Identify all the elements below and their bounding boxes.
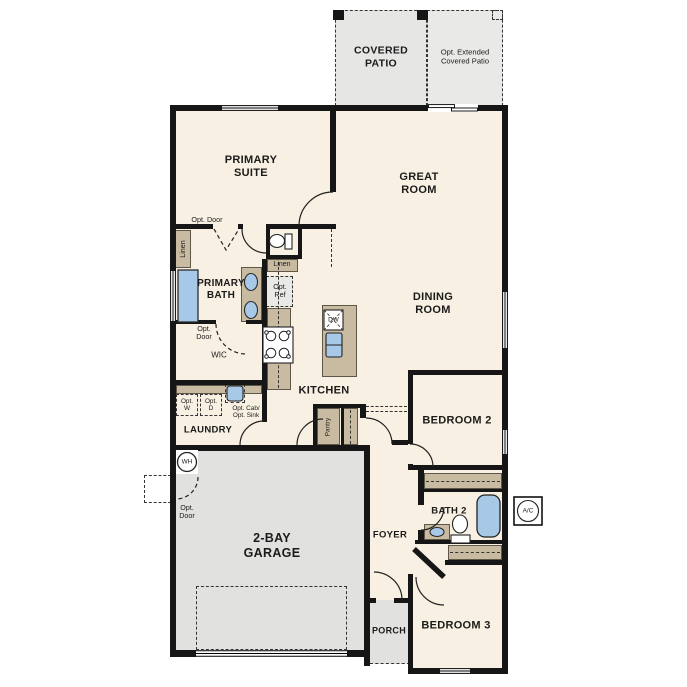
label-porch: PORCH — [372, 626, 406, 637]
patio-post — [333, 10, 344, 20]
label-dining-room: DINING ROOM — [413, 291, 453, 317]
garage-door-outline — [196, 586, 347, 650]
label-ac: A/C — [523, 507, 534, 514]
label-linen-bath: Linen — [273, 261, 290, 269]
label-garage: 2-BAY GARAGE — [244, 531, 301, 561]
porch-edge-line — [370, 663, 410, 664]
label-laundry: LAUNDRY — [184, 424, 232, 435]
bath2-vanity — [424, 524, 450, 540]
label-wic: WIC — [211, 352, 227, 361]
label-bath2: BATH 2 — [431, 505, 466, 516]
label-bedroom2: BEDROOM 2 — [422, 414, 491, 427]
label-linen-left: Linen — [179, 240, 187, 258]
label-opt-extended-patio: Opt. Extended Covered Patio — [441, 49, 490, 66]
label-kitchen: KITCHEN — [299, 384, 350, 397]
hall-ceiling-break — [366, 411, 407, 412]
laundry-counter — [176, 385, 262, 394]
bedroom2-closet-rod — [426, 481, 500, 482]
label-opt-door-garage: Opt. Door — [179, 504, 195, 520]
label-bedroom3: BEDROOM 3 — [421, 619, 490, 632]
label-opt-d: Opt. D — [205, 398, 217, 412]
opt-cab-sink-box — [225, 384, 245, 403]
patio-post-optional — [492, 10, 503, 20]
label-primary-bath: PRIMARY BATH — [197, 278, 245, 302]
label-dw: DW — [328, 316, 339, 323]
label-opt-cab-sink: Opt. Cab/ Opt. Sink — [232, 405, 259, 419]
floor-plan: COVERED PATIO Opt. Extended Covered Pati… — [0, 0, 687, 687]
patio-post — [417, 10, 428, 20]
bedroom3-closet-rod — [450, 552, 500, 553]
hall-ceiling-break — [366, 406, 407, 407]
counter-centerline — [278, 262, 279, 388]
label-opt-door-wic: Opt. Door — [196, 325, 212, 341]
label-foyer: FOYER — [373, 529, 407, 540]
label-wh: WH — [182, 458, 193, 465]
label-pantry: Pantry — [324, 418, 331, 436]
label-opt-door-suite: Opt. Door — [191, 216, 222, 224]
label-primary-suite: PRIMARY SUITE — [225, 154, 277, 180]
label-great-room: GREAT ROOM — [399, 171, 438, 197]
label-opt-w: Opt. W — [181, 398, 193, 412]
foyer-area — [366, 450, 408, 602]
label-covered-patio: COVERED PATIO — [354, 44, 408, 69]
kitchen-counter — [267, 308, 291, 390]
coat-closet-rod — [350, 410, 351, 444]
label-opt-ref: Opt. Ref — [273, 283, 287, 299]
great-room-break-line — [331, 229, 332, 267]
